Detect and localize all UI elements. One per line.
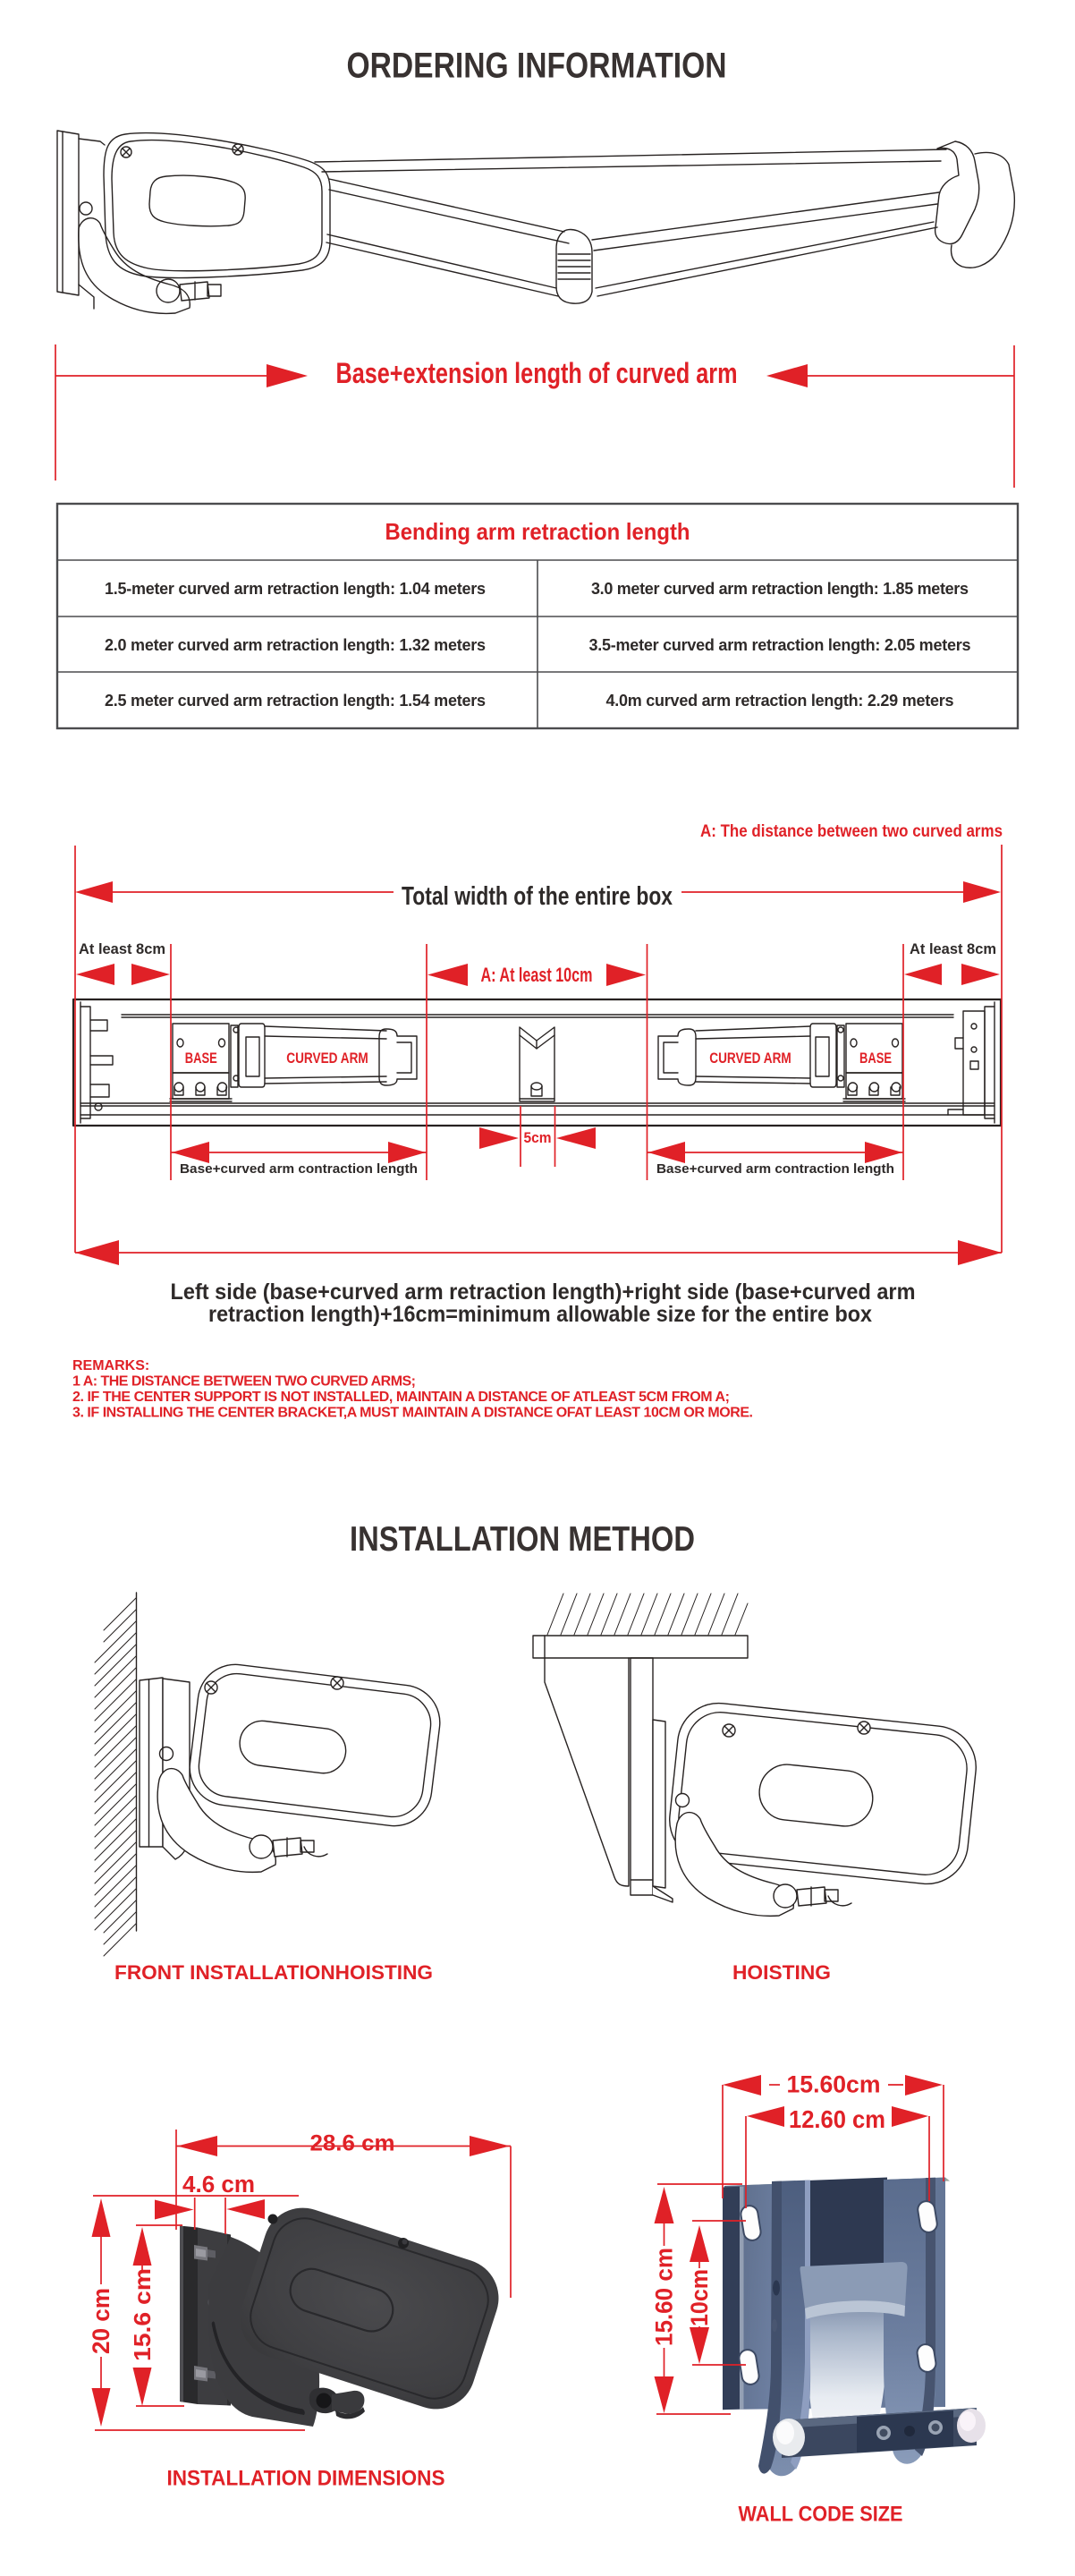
- svg-text:2.5 meter curved arm retractio: 2.5 meter curved arm retraction length: …: [105, 692, 486, 710]
- svg-text:A: The distance between two cu: A: The distance between two curved arms: [700, 822, 1003, 841]
- svg-text:15.60cm: 15.60cm: [787, 2071, 881, 2098]
- svg-text:A: At least 10cm: A: At least 10cm: [481, 964, 593, 986]
- svg-text:retraction length)+16cm=minimu: retraction length)+16cm=minimum allowabl…: [208, 1302, 872, 1327]
- svg-text:CURVED ARM: CURVED ARM: [709, 1050, 791, 1067]
- svg-text:2. IF THE CENTER SUPPORT IS NO: 2. IF THE CENTER SUPPORT IS NOT INSTALLE…: [72, 1390, 730, 1405]
- svg-text:3.5-meter curved arm retractio: 3.5-meter curved arm retraction length: …: [589, 636, 971, 654]
- svg-text:Total width of the entire box: Total width of the entire box: [402, 882, 673, 911]
- svg-text:1.5-meter curved arm retractio: 1.5-meter curved arm retraction length: …: [105, 580, 486, 598]
- svg-text:Base+extension length of curve: Base+extension length of curved arm: [336, 357, 738, 389]
- svg-text:28.6 cm: 28.6 cm: [310, 2131, 395, 2156]
- svg-text:Left side (base+curved arm ret: Left side (base+curved arm retraction le…: [171, 1279, 916, 1305]
- svg-text:BASE: BASE: [859, 1050, 892, 1067]
- svg-text:15.6 cm: 15.6 cm: [129, 2268, 156, 2361]
- svg-text:Bending arm retraction length: Bending arm retraction length: [385, 518, 690, 545]
- svg-text:REMARKS:: REMARKS:: [72, 1358, 149, 1373]
- svg-text:HOISTING: HOISTING: [732, 1961, 831, 1984]
- svg-text:FRONT INSTALLATIONHOISTING: FRONT INSTALLATIONHOISTING: [114, 1961, 433, 1984]
- svg-text:ORDERING INFORMATION: ORDERING INFORMATION: [347, 47, 727, 86]
- svg-text:3.0 meter curved arm retractio: 3.0 meter curved arm retraction length: …: [591, 580, 969, 598]
- svg-text:12.60 cm: 12.60 cm: [789, 2105, 885, 2133]
- svg-text:BASE: BASE: [185, 1050, 217, 1067]
- svg-text:5cm: 5cm: [524, 1130, 552, 1146]
- svg-text:10cm: 10cm: [686, 2269, 713, 2326]
- svg-text:15.60 cm: 15.60 cm: [651, 2248, 678, 2346]
- svg-text:4.0m curved arm retraction len: 4.0m curved arm retraction length: 2.29 …: [606, 692, 954, 710]
- svg-text:At least 8cm: At least 8cm: [910, 940, 996, 957]
- svg-text:3. IF INSTALLING THE CENTER BR: 3. IF INSTALLING THE CENTER BRACKET,A MU…: [72, 1406, 753, 1421]
- svg-text:1 A: THE DISTANCE BETWEEN TWO: 1 A: THE DISTANCE BETWEEN TWO CURVED ARM…: [72, 1374, 416, 1390]
- svg-text:INSTALLATION METHOD: INSTALLATION METHOD: [350, 1520, 695, 1559]
- svg-text:2.0 meter curved arm retractio: 2.0 meter curved arm retraction length: …: [105, 636, 486, 654]
- svg-text:Base+curved arm contraction le: Base+curved arm contraction length: [656, 1161, 894, 1177]
- svg-text:4.6 cm: 4.6 cm: [182, 2172, 255, 2198]
- svg-text:WALL CODE SIZE: WALL CODE SIZE: [739, 2503, 903, 2527]
- svg-text:INSTALLATION DIMENSIONS: INSTALLATION DIMENSIONS: [167, 2467, 445, 2491]
- svg-text:At least 8cm: At least 8cm: [79, 940, 165, 957]
- svg-text:CURVED ARM: CURVED ARM: [286, 1050, 368, 1067]
- svg-text:20 cm: 20 cm: [88, 2288, 114, 2354]
- svg-text:Base+curved arm contraction le: Base+curved arm contraction length: [180, 1161, 418, 1177]
